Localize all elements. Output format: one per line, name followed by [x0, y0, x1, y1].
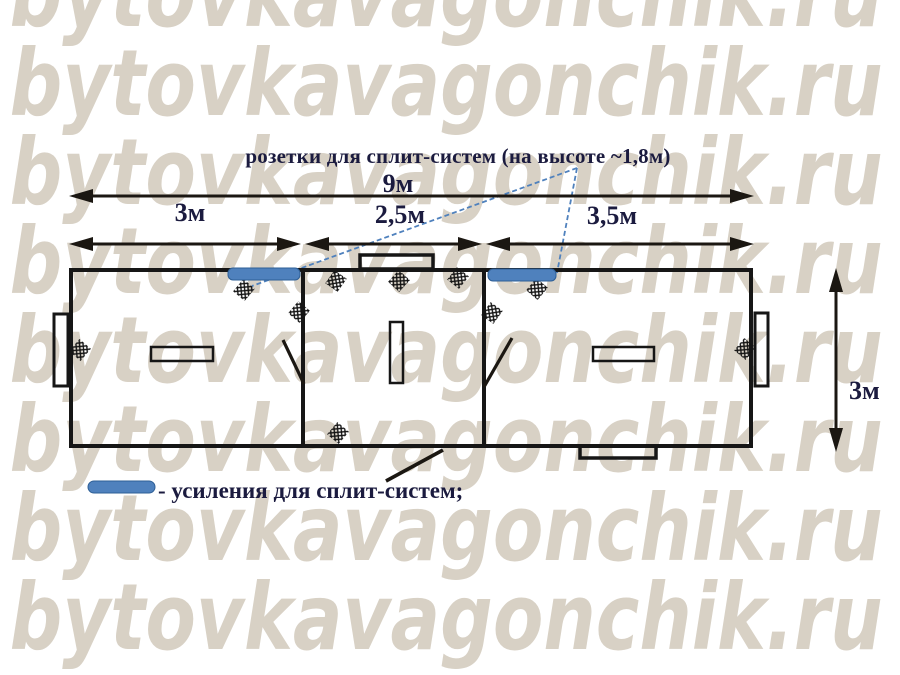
dim-label-room-right: 3,5м [587, 201, 637, 230]
reinforcement-bar-left [228, 268, 300, 280]
watermark-row: bytovkavagonchik.ru [10, 564, 883, 671]
sockets-note-label: розетки для сплит-систем (на высоте ~1,8… [245, 144, 670, 168]
dim-label-depth: 3м [849, 376, 880, 405]
dim-label-room-left: 3м [175, 198, 206, 227]
legend-reinforcement-bar [88, 481, 155, 493]
floor-plan-canvas: bytovkavagonchik.ru bytovkavagonchik.ru … [0, 0, 900, 675]
dim-label-room-middle: 2,5м [375, 200, 425, 229]
reinforcement-bar-right [488, 269, 556, 281]
legend-label: - усиления для сплит-систем; [158, 478, 463, 503]
floor-plan-page: bytovkavagonchik.ru bytovkavagonchik.ru … [0, 0, 900, 675]
dim-label-total: 9м [383, 169, 414, 198]
